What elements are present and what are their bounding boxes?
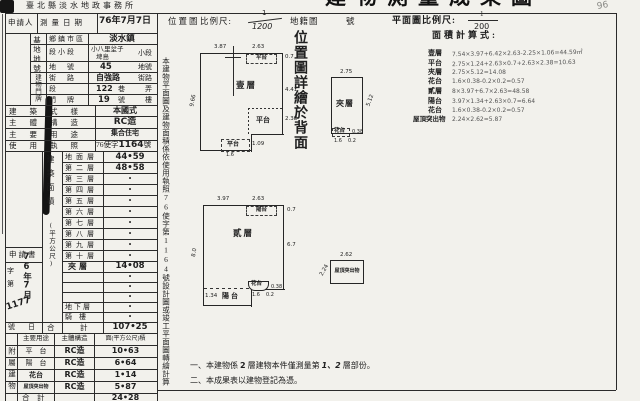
fraction-bar: [468, 20, 498, 21]
row-label: 段小段: [49, 49, 76, 56]
calc-title: 面積計算式:: [432, 31, 498, 40]
row-line: [30, 61, 157, 62]
application-date: 76年7月: [22, 252, 31, 299]
attached-structure: RC造: [55, 359, 94, 367]
calc-expr: 3.97×1.34+2.63×0.7=6.64: [452, 99, 535, 105]
terrace-label: 平台: [246, 56, 277, 62]
total-day-label: 日: [28, 324, 35, 331]
dim-label: 2.63: [252, 197, 264, 203]
row-label: 主要用途: [9, 131, 93, 139]
floor-col-unit: (平方公尺): [47, 222, 54, 268]
dim-label: 6.7: [287, 243, 296, 249]
floor-label-mezzanine: 夾層: [68, 263, 90, 271]
floor-value: •: [103, 283, 157, 291]
floor-value: •: [103, 241, 157, 249]
plan-dash-line: [204, 288, 251, 289]
row-line: [62, 239, 157, 240]
dim-label: 0.7: [285, 55, 294, 61]
floor-value: •: [103, 252, 157, 260]
floor-value: •: [103, 313, 157, 321]
row-line: [62, 195, 157, 196]
attached-structure: RC造: [55, 347, 94, 355]
attached-use: 陽 台: [18, 360, 54, 367]
frame-right: [616, 13, 617, 390]
dim-label: 0.2: [348, 139, 356, 144]
frame-bottom: [157, 390, 616, 391]
balcony-label: 陽台: [222, 293, 240, 300]
application-di: 第: [7, 281, 14, 288]
floor-label: 第四層: [65, 187, 98, 194]
pencil-note: 96: [596, 1, 609, 12]
row-label: 段: [49, 86, 56, 93]
side-note: 本建物平面圖及建物面積係依使用執照76使字第1164號設計圖或竣工平面圖轉繪計算: [162, 57, 170, 389]
dim-label: 2.62: [340, 253, 352, 259]
floor-label: 地下層: [65, 304, 92, 311]
attached-area: 5•87: [95, 383, 156, 391]
note-1-suf: 層部份。: [343, 361, 375, 370]
floor-value: •: [103, 219, 157, 227]
ink-blob: [0, 0, 14, 13]
calc-label: 夾層: [428, 69, 442, 76]
cadastral-map-label: 地籍圖: [290, 17, 319, 26]
row-suffix: 街路: [138, 75, 152, 82]
floor-label: 第七層: [65, 220, 98, 227]
row-value: 集合住宅: [95, 130, 155, 137]
calc-expr: 8×3.97+6.7×2.63=48.58: [452, 89, 529, 95]
row-value: 自強路: [96, 74, 120, 82]
scale-label: 比例尺:: [200, 17, 232, 26]
note-1-mid: 層建物本件僅測量第: [248, 361, 320, 370]
application-zi: 字: [7, 268, 14, 275]
floor-value: 14•08: [103, 262, 157, 271]
attached-structure: RC造: [55, 371, 94, 379]
dim-label: 8.0: [192, 248, 199, 258]
attached-total-label: 合 計: [22, 394, 45, 401]
floor-value: •: [103, 186, 157, 194]
application-number: 1177: [5, 296, 32, 312]
floor-label: 第五層: [65, 198, 98, 205]
section-line: [5, 333, 157, 334]
plan-roof-label: 屋頂突出物: [330, 269, 364, 274]
dim-label: 0.38: [352, 130, 363, 135]
cell-line: [42, 151, 43, 333]
survey-date-value: 76年7月7日: [99, 17, 151, 26]
flower-label: 花台: [251, 282, 262, 288]
total-no-label: 號: [8, 324, 15, 331]
row-label: 街 路: [49, 75, 76, 82]
dim-label: 2.63: [252, 45, 264, 51]
dim-label: 0.38: [271, 285, 282, 290]
row-line: [62, 184, 157, 185]
dim-label: 2.24: [320, 264, 331, 277]
floor-label: 地面層: [65, 154, 98, 161]
attached-header: 面(平方公尺)積: [95, 336, 156, 342]
attached-area: 10•63: [95, 347, 156, 355]
row-line: [30, 94, 157, 95]
row-line: [62, 173, 157, 174]
row-value: RC造: [95, 118, 155, 127]
calc-label: 壹層: [428, 50, 442, 57]
row-suffix: 地號: [138, 64, 152, 71]
attached-header: 主體構造: [55, 336, 94, 343]
row-value: 122: [96, 85, 113, 93]
attached-structure: RC造: [55, 383, 94, 391]
row-line: [62, 217, 157, 218]
cell-line: [97, 13, 98, 33]
total-label-1: 合: [47, 324, 55, 332]
dim-label: 0.2: [266, 293, 274, 298]
plan-dash-line: [248, 108, 282, 109]
calc-expr: 1.6×0.38-0.2×0.2=0.57: [452, 108, 525, 114]
frame-left: [5, 13, 6, 401]
row-mid: 巷: [118, 86, 125, 93]
row-suffix: 樓: [145, 97, 152, 104]
balcony-label: 陽台: [246, 208, 277, 214]
floor-value: 48•58: [103, 164, 157, 173]
dim-label: 9.66: [190, 94, 198, 107]
block-line: [5, 247, 42, 248]
attached-area: 1•14: [95, 371, 156, 379]
floor-label: 第三層: [65, 176, 98, 183]
top-title-fragment: 建物測量成果圖: [325, 0, 575, 10]
calc-expr: 7.54×3.97+6.42×2.63-2.25×1.06=44.59㎡: [452, 50, 583, 58]
title-clipped: 建物測量成果圖: [325, 0, 575, 8]
plan-mezzanine-label: 夾層: [336, 100, 354, 108]
dim-label: 3.97: [217, 197, 229, 203]
calc-label: 貳層: [428, 88, 442, 95]
cell-line: [37, 13, 38, 33]
dim-label: 3.87: [214, 45, 226, 51]
row-value: 小八里坌子: [91, 46, 124, 53]
location-map-label: 位置圖: [168, 17, 200, 26]
scale-denominator: 1200: [252, 23, 272, 31]
applicant-label: 申請人: [8, 19, 34, 27]
row-value: 19: [98, 96, 110, 105]
doorplate-col-label: 建物門牌: [33, 74, 40, 102]
terrace-label: 平台: [227, 142, 239, 148]
dim-label: 2.38: [285, 117, 297, 123]
note-1: 一、本建物係 2 層建物本件僅測量第 1、2 層部份。: [190, 362, 375, 370]
floor-label: 騎 樓: [65, 314, 86, 321]
dim-label: 5.12: [366, 94, 375, 107]
attached-use: 花台: [18, 372, 54, 379]
calc-label: 花台: [428, 107, 442, 114]
row-value: 45: [100, 63, 112, 72]
note-1-floors: 1、2: [322, 361, 341, 370]
row-label: 地 號: [49, 64, 76, 71]
floor-value: •: [103, 208, 157, 216]
license-suffix: 號: [144, 140, 152, 149]
license-number: 1164: [119, 140, 144, 150]
attached-use: 屋頂突出物: [18, 385, 54, 390]
calc-label: 陽台: [428, 98, 442, 105]
terrace-label: 平台: [256, 117, 270, 124]
calc-label: 平台: [428, 60, 442, 67]
dim-label: 1.6: [252, 293, 260, 298]
dim-label: 1.34: [205, 294, 217, 300]
dim-label: 1.09: [252, 142, 264, 148]
row-label: 使用執照: [9, 142, 93, 150]
floor-col-label: 建築面積: [46, 155, 54, 211]
row-line: [62, 206, 157, 207]
flower-label: 花台: [334, 129, 345, 135]
floor-value: •: [103, 303, 157, 311]
survey-date-label: 測量日期: [40, 19, 86, 27]
attached-use: 平 台: [18, 348, 54, 355]
row-value: 淡水鎮: [92, 35, 152, 44]
floor-value: •: [103, 175, 157, 183]
floor-label: 第十層: [65, 253, 98, 260]
cell-line: [17, 333, 18, 401]
row-suffix: 弄: [145, 86, 152, 93]
calc-expr: 1.6×0.38-0.2×0.2=0.57: [452, 79, 525, 85]
floor-value: •: [103, 197, 157, 205]
calc-expr: 2.75×1.24+2.63×0.7+2.63×2.38=10.63: [452, 60, 576, 68]
total-label-2: 計: [80, 324, 88, 332]
row-suffix: 小段: [138, 50, 152, 57]
scanned-survey-form: 臺北縣淡水地政事務所 收件年月日字號 建物測量成果圖 96 申請人 測量日期 7…: [0, 0, 640, 401]
floor-value: •: [103, 293, 157, 301]
cadastral-no-suffix: 號: [346, 17, 355, 26]
location-note: 位置圖詳繪於背面: [293, 30, 307, 170]
total-value: 107•25: [103, 323, 157, 332]
plan-scale-numerator: 1: [480, 11, 484, 18]
floor-value: 44•59: [103, 153, 157, 162]
row-label: 建築式樣: [9, 108, 93, 116]
license-value: 76使字1164號: [96, 141, 151, 150]
note-1-pre: 一、本建物係: [190, 361, 238, 370]
note-2: 二、本成果表以建物登記為憑。: [190, 377, 302, 385]
row-value: 本國式: [95, 107, 155, 115]
row-line: [62, 250, 157, 251]
top-left-fragment: 臺北縣淡水地政事務所 收件年月日字號: [26, 0, 226, 12]
floor-value: •: [103, 273, 157, 281]
plan-floor1-label: 壹層: [236, 82, 257, 91]
floor-label: 第八層: [65, 231, 98, 238]
plan-dash-line: [248, 108, 249, 134]
attached-area: 6•64: [95, 359, 156, 367]
attached-total-value: 24•28: [95, 394, 156, 401]
cell-line: [62, 151, 63, 333]
dim-label: 4.41: [285, 88, 297, 94]
scale-numerator: 1: [262, 10, 266, 17]
dim-label: 1.6: [334, 139, 342, 144]
floor-value: •: [103, 230, 157, 238]
note-1-num: 2: [240, 361, 246, 370]
plan-floor2-label: 貳層: [233, 230, 254, 239]
dim-label: 1.6: [226, 153, 234, 158]
floor-label: 第六層: [65, 209, 98, 216]
scan-edge: [2, 14, 3, 234]
table-right-edge: [157, 13, 158, 401]
row-label: 門 牌: [49, 97, 76, 104]
row-label: 鄉鎮市區: [49, 36, 85, 43]
calc-expr: 2.24×2.62=5.87: [452, 117, 502, 123]
row-line: [30, 72, 157, 73]
calc-expr: 2.75×5.12=14.08: [452, 70, 506, 76]
calc-label: 花台: [428, 78, 442, 85]
attached-col-label: 附屬建物: [8, 347, 16, 393]
plan-scale-label: 平面圖比例尺:: [392, 16, 456, 25]
license-prefix: 76使字: [96, 140, 119, 149]
row-mid: 號: [118, 97, 125, 104]
row-value-2: 埤島: [96, 54, 109, 61]
attached-header: 主要用途: [18, 336, 54, 343]
floor-label: 第九層: [65, 242, 98, 249]
site-col-label: 基地地號: [33, 36, 41, 74]
dim-label: 0.7: [287, 208, 296, 214]
dim-label: 2.75: [340, 70, 352, 76]
row-line: [30, 83, 157, 84]
row-label: 主體構造: [9, 119, 93, 127]
floor-label: 第二層: [65, 165, 98, 172]
fragment-text-1: 臺北縣淡水地政事務所: [26, 1, 136, 10]
row-line: [62, 228, 157, 229]
calc-label: 屋頂突出物: [413, 116, 446, 123]
